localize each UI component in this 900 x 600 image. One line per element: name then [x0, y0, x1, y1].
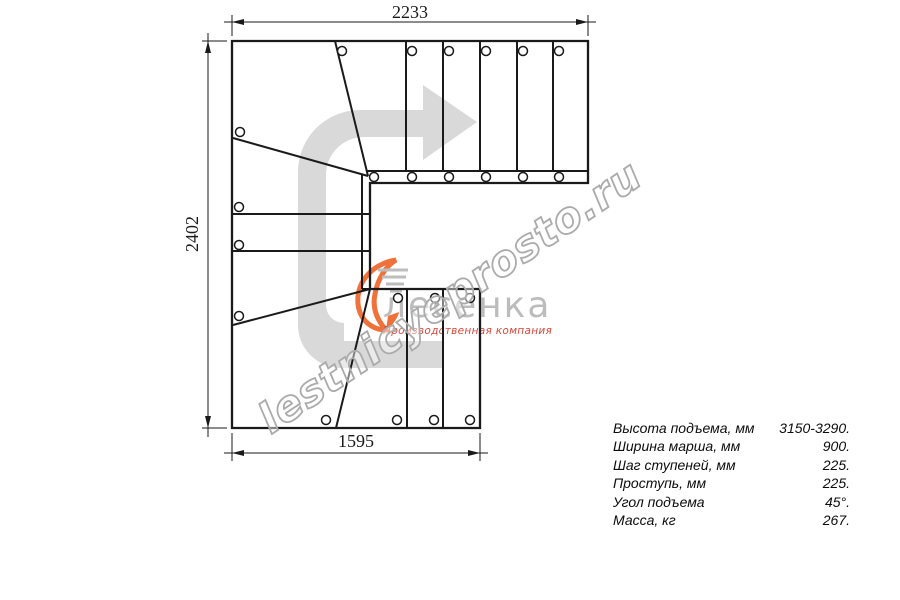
- spec-label: Шаг ступеней, мм: [613, 456, 736, 474]
- spec-row: Шаг ступеней, мм 225.: [613, 456, 850, 474]
- spec-row: Масса, кг 267.: [613, 511, 850, 529]
- spec-label: Высота подъема, мм: [613, 419, 755, 437]
- spec-label: Угол подъема: [613, 493, 705, 511]
- spec-value: 267.: [823, 511, 850, 529]
- spec-row: Высота подъема, мм 3150-3290.: [613, 419, 850, 437]
- spec-value: 3150-3290.: [779, 419, 850, 437]
- spec-label: Масса, кг: [613, 511, 676, 529]
- spec-row: Угол подъема 45°.: [613, 493, 850, 511]
- spec-label: Проступь, мм: [613, 474, 706, 492]
- spec-value: 900.: [823, 437, 850, 455]
- spec-row: Ширина марша, мм 900.: [613, 437, 850, 455]
- spec-value: 45°.: [825, 493, 850, 511]
- spec-label: Ширина марша, мм: [613, 437, 740, 455]
- spec-value: 225.: [823, 456, 850, 474]
- spec-row: Проступь, мм 225.: [613, 474, 850, 492]
- drawing-canvas: лесенка Производственная компания: [0, 0, 900, 600]
- spec-value: 225.: [823, 474, 850, 492]
- specs-table: Высота подъема, мм 3150-3290. Ширина мар…: [613, 419, 850, 529]
